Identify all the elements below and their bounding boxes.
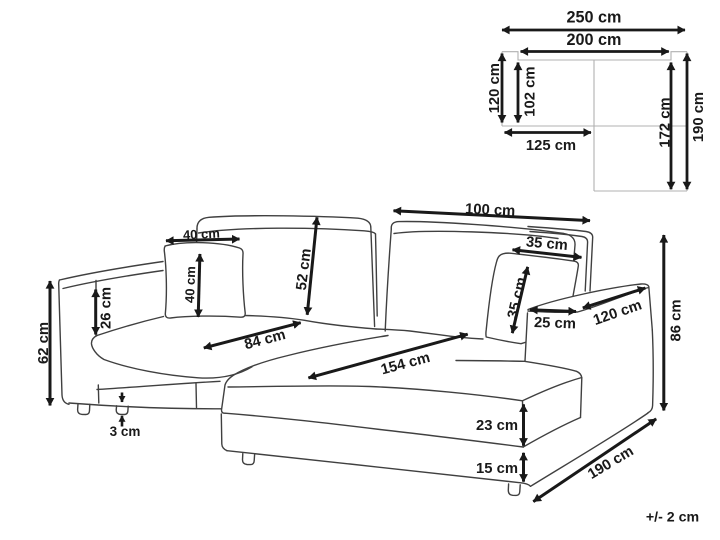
svg-text:102 cm: 102 cm	[522, 67, 538, 117]
svg-text:62 cm: 62 cm	[36, 322, 52, 364]
svg-text:40 cm: 40 cm	[182, 266, 198, 303]
svg-text:200 cm: 200 cm	[567, 31, 622, 49]
svg-text:154 cm: 154 cm	[379, 350, 432, 378]
svg-text:26 cm: 26 cm	[99, 287, 115, 329]
svg-text:250 cm: 250 cm	[567, 9, 622, 27]
svg-text:23 cm: 23 cm	[476, 418, 518, 434]
svg-text:84 cm: 84 cm	[243, 327, 288, 353]
svg-text:125 cm: 125 cm	[526, 138, 576, 154]
svg-text:3 cm: 3 cm	[110, 424, 141, 439]
svg-text:100 cm: 100 cm	[465, 201, 516, 219]
svg-text:25 cm: 25 cm	[534, 315, 577, 332]
svg-text:190 cm: 190 cm	[691, 92, 707, 142]
svg-text:+/- 2 cm: +/- 2 cm	[646, 510, 699, 526]
svg-text:120 cm: 120 cm	[487, 63, 503, 113]
svg-text:15 cm: 15 cm	[476, 461, 518, 477]
svg-text:86 cm: 86 cm	[669, 300, 685, 342]
svg-text:40 cm: 40 cm	[183, 226, 221, 243]
svg-text:172 cm: 172 cm	[657, 97, 673, 147]
